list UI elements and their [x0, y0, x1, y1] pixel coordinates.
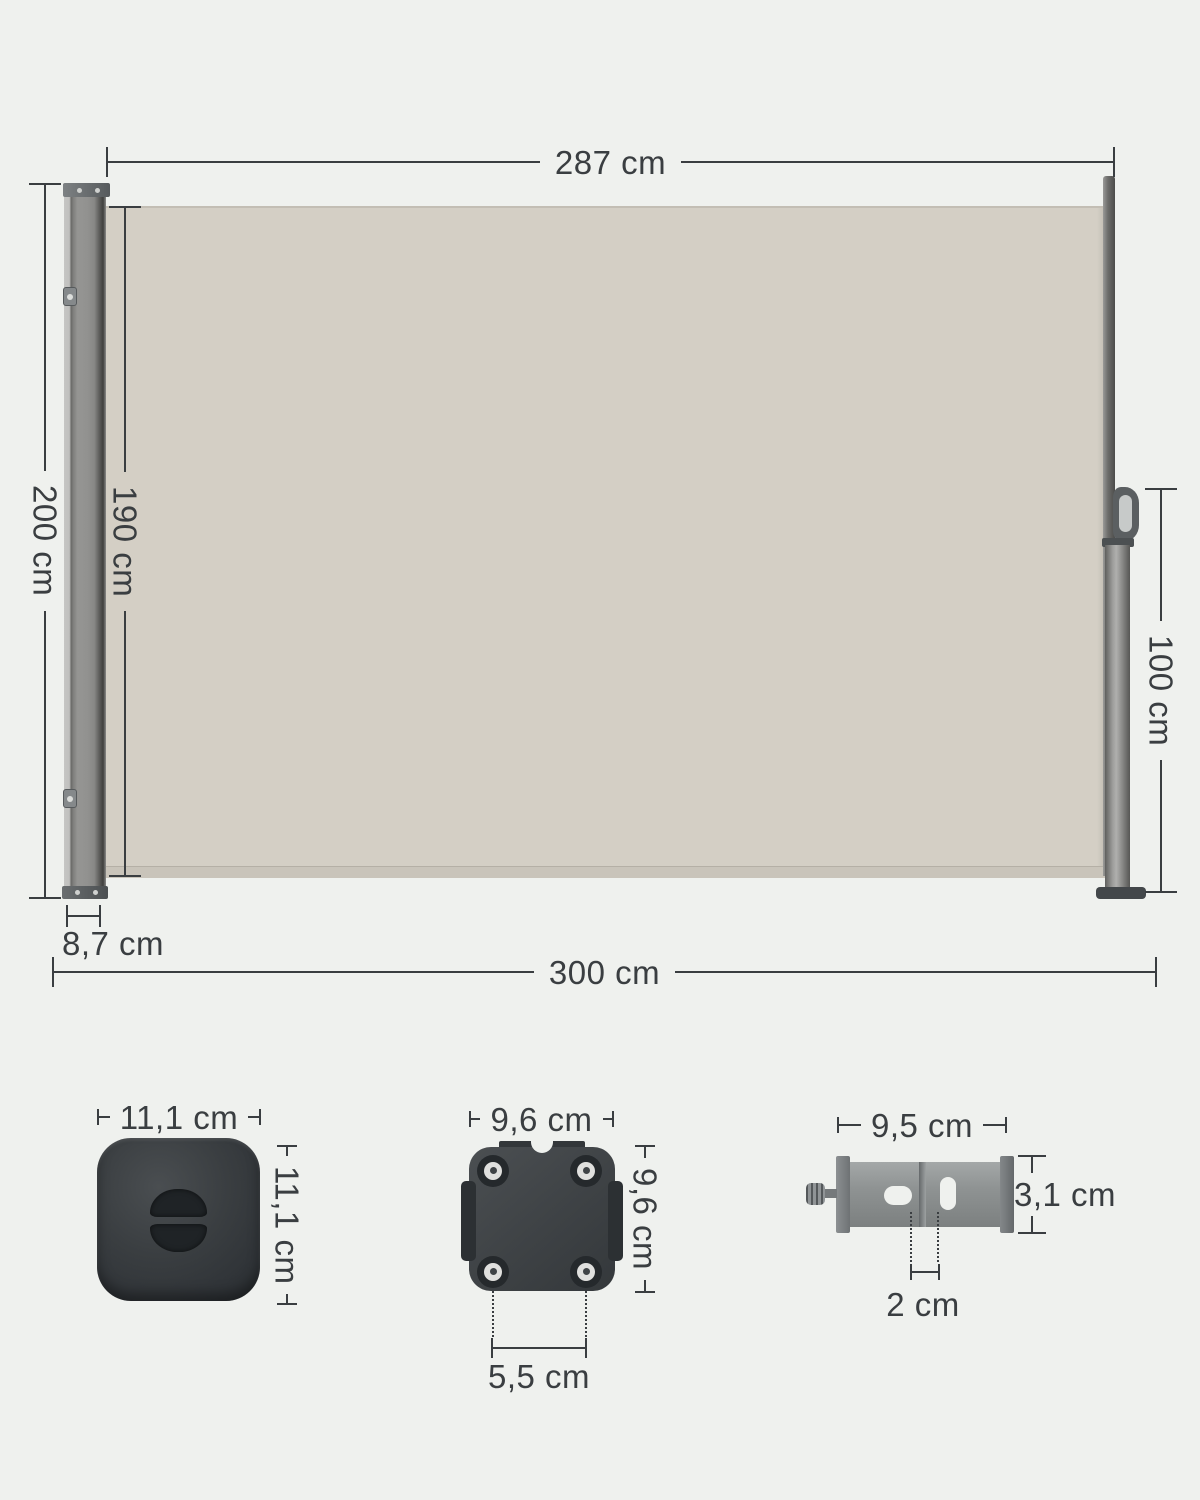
dim-total-width-label: 300 cm	[534, 956, 675, 989]
tab-hole	[67, 294, 73, 300]
dim-bracket-width: 9,5 cm	[837, 1117, 1007, 1133]
dim-total-width: 300 cm	[52, 957, 1157, 987]
dim-bracket-height-label: 3,1 cm	[1014, 1178, 1116, 1211]
dim-pole-height: 100 cm	[1141, 488, 1181, 893]
support-pole	[1105, 545, 1130, 889]
mounting-plate-clip-right	[608, 1181, 623, 1261]
screw-icon	[75, 890, 80, 895]
fabric-bottom-hem	[106, 866, 1106, 878]
dim-fabric-width-label: 287 cm	[540, 146, 681, 179]
dim-slot-spacing-label: 2 cm	[858, 1288, 988, 1321]
extension-line	[937, 1212, 939, 1262]
dim-cassette-depth	[66, 905, 101, 927]
dim-mounting-plate-height: 9,6 cm	[623, 1145, 667, 1293]
dim-bracket-height-stem-top	[1031, 1155, 1033, 1173]
bracket-flange-right	[1000, 1156, 1014, 1233]
awning-fabric-panel	[106, 206, 1106, 878]
dim-bracket-width-label: 9,5 cm	[861, 1109, 983, 1142]
cassette-wall-tab-lower	[63, 789, 77, 808]
dim-floor-plate-height: 11,1 cm	[265, 1145, 309, 1305]
extension-line	[492, 1291, 494, 1337]
dim-mounting-plate-width-label: 9,6 cm	[480, 1103, 602, 1136]
dim-floor-plate-height-label: 11,1 cm	[271, 1156, 304, 1294]
mounting-hole	[570, 1155, 602, 1187]
dim-total-height-label: 200 cm	[29, 471, 62, 610]
extension-line	[910, 1212, 912, 1262]
dim-mounting-plate-width: 9,6 cm	[469, 1111, 614, 1127]
bracket-flange-left	[836, 1156, 850, 1233]
dim-fabric-height-label: 190 cm	[109, 472, 142, 611]
tab-hole	[67, 796, 73, 802]
mounting-plate-clip-left	[461, 1181, 476, 1261]
diagram-canvas: 287 cm 200 cm 190 cm 100 cm 8,7 cm 300 c…	[0, 0, 1200, 1500]
cassette-top-cap	[63, 183, 110, 197]
dim-floor-plate-width: 11,1 cm	[97, 1109, 261, 1125]
screw-icon	[93, 890, 98, 895]
mounting-plate	[461, 1141, 623, 1293]
screw-stem	[824, 1189, 837, 1198]
dim-hole-spacing-label: 5,5 cm	[459, 1360, 619, 1393]
dim-fabric-height: 190 cm	[105, 206, 145, 877]
pull-handle	[1113, 487, 1139, 541]
dim-mounting-plate-height-label: 9,6 cm	[629, 1158, 662, 1280]
dim-fabric-width: 287 cm	[106, 147, 1115, 177]
dim-cassette-depth-label: 8,7 cm	[62, 927, 164, 960]
dim-bracket-height-tick-bottom	[1018, 1232, 1046, 1234]
dim-total-height: 200 cm	[25, 183, 65, 899]
extension-line	[585, 1291, 587, 1337]
floor-plate-groove-top	[150, 1189, 207, 1217]
handle-cutout	[1119, 495, 1132, 532]
mounting-hole	[477, 1155, 509, 1187]
dim-hole-spacing	[491, 1338, 587, 1358]
bracket-slot-horizontal	[884, 1186, 912, 1205]
floor-plate	[97, 1138, 260, 1301]
mounting-hole	[570, 1256, 602, 1288]
cassette-wall-tab-upper	[63, 287, 77, 306]
wall-bracket	[806, 1156, 1046, 1236]
mounting-hole	[477, 1256, 509, 1288]
dim-floor-plate-width-label: 11,1 cm	[110, 1101, 248, 1134]
screw-icon	[77, 188, 82, 193]
bracket-slot-vertical	[940, 1177, 956, 1210]
floor-plate-groove-bottom	[150, 1224, 207, 1252]
screw-icon	[95, 188, 100, 193]
cassette-bottom-cap	[62, 886, 108, 899]
thumb-screw-icon	[806, 1183, 825, 1205]
pole-foot-plate	[1096, 887, 1146, 899]
dim-slot-spacing	[910, 1264, 940, 1280]
dim-pole-height-label: 100 cm	[1145, 621, 1178, 760]
bracket-seam	[919, 1162, 926, 1227]
